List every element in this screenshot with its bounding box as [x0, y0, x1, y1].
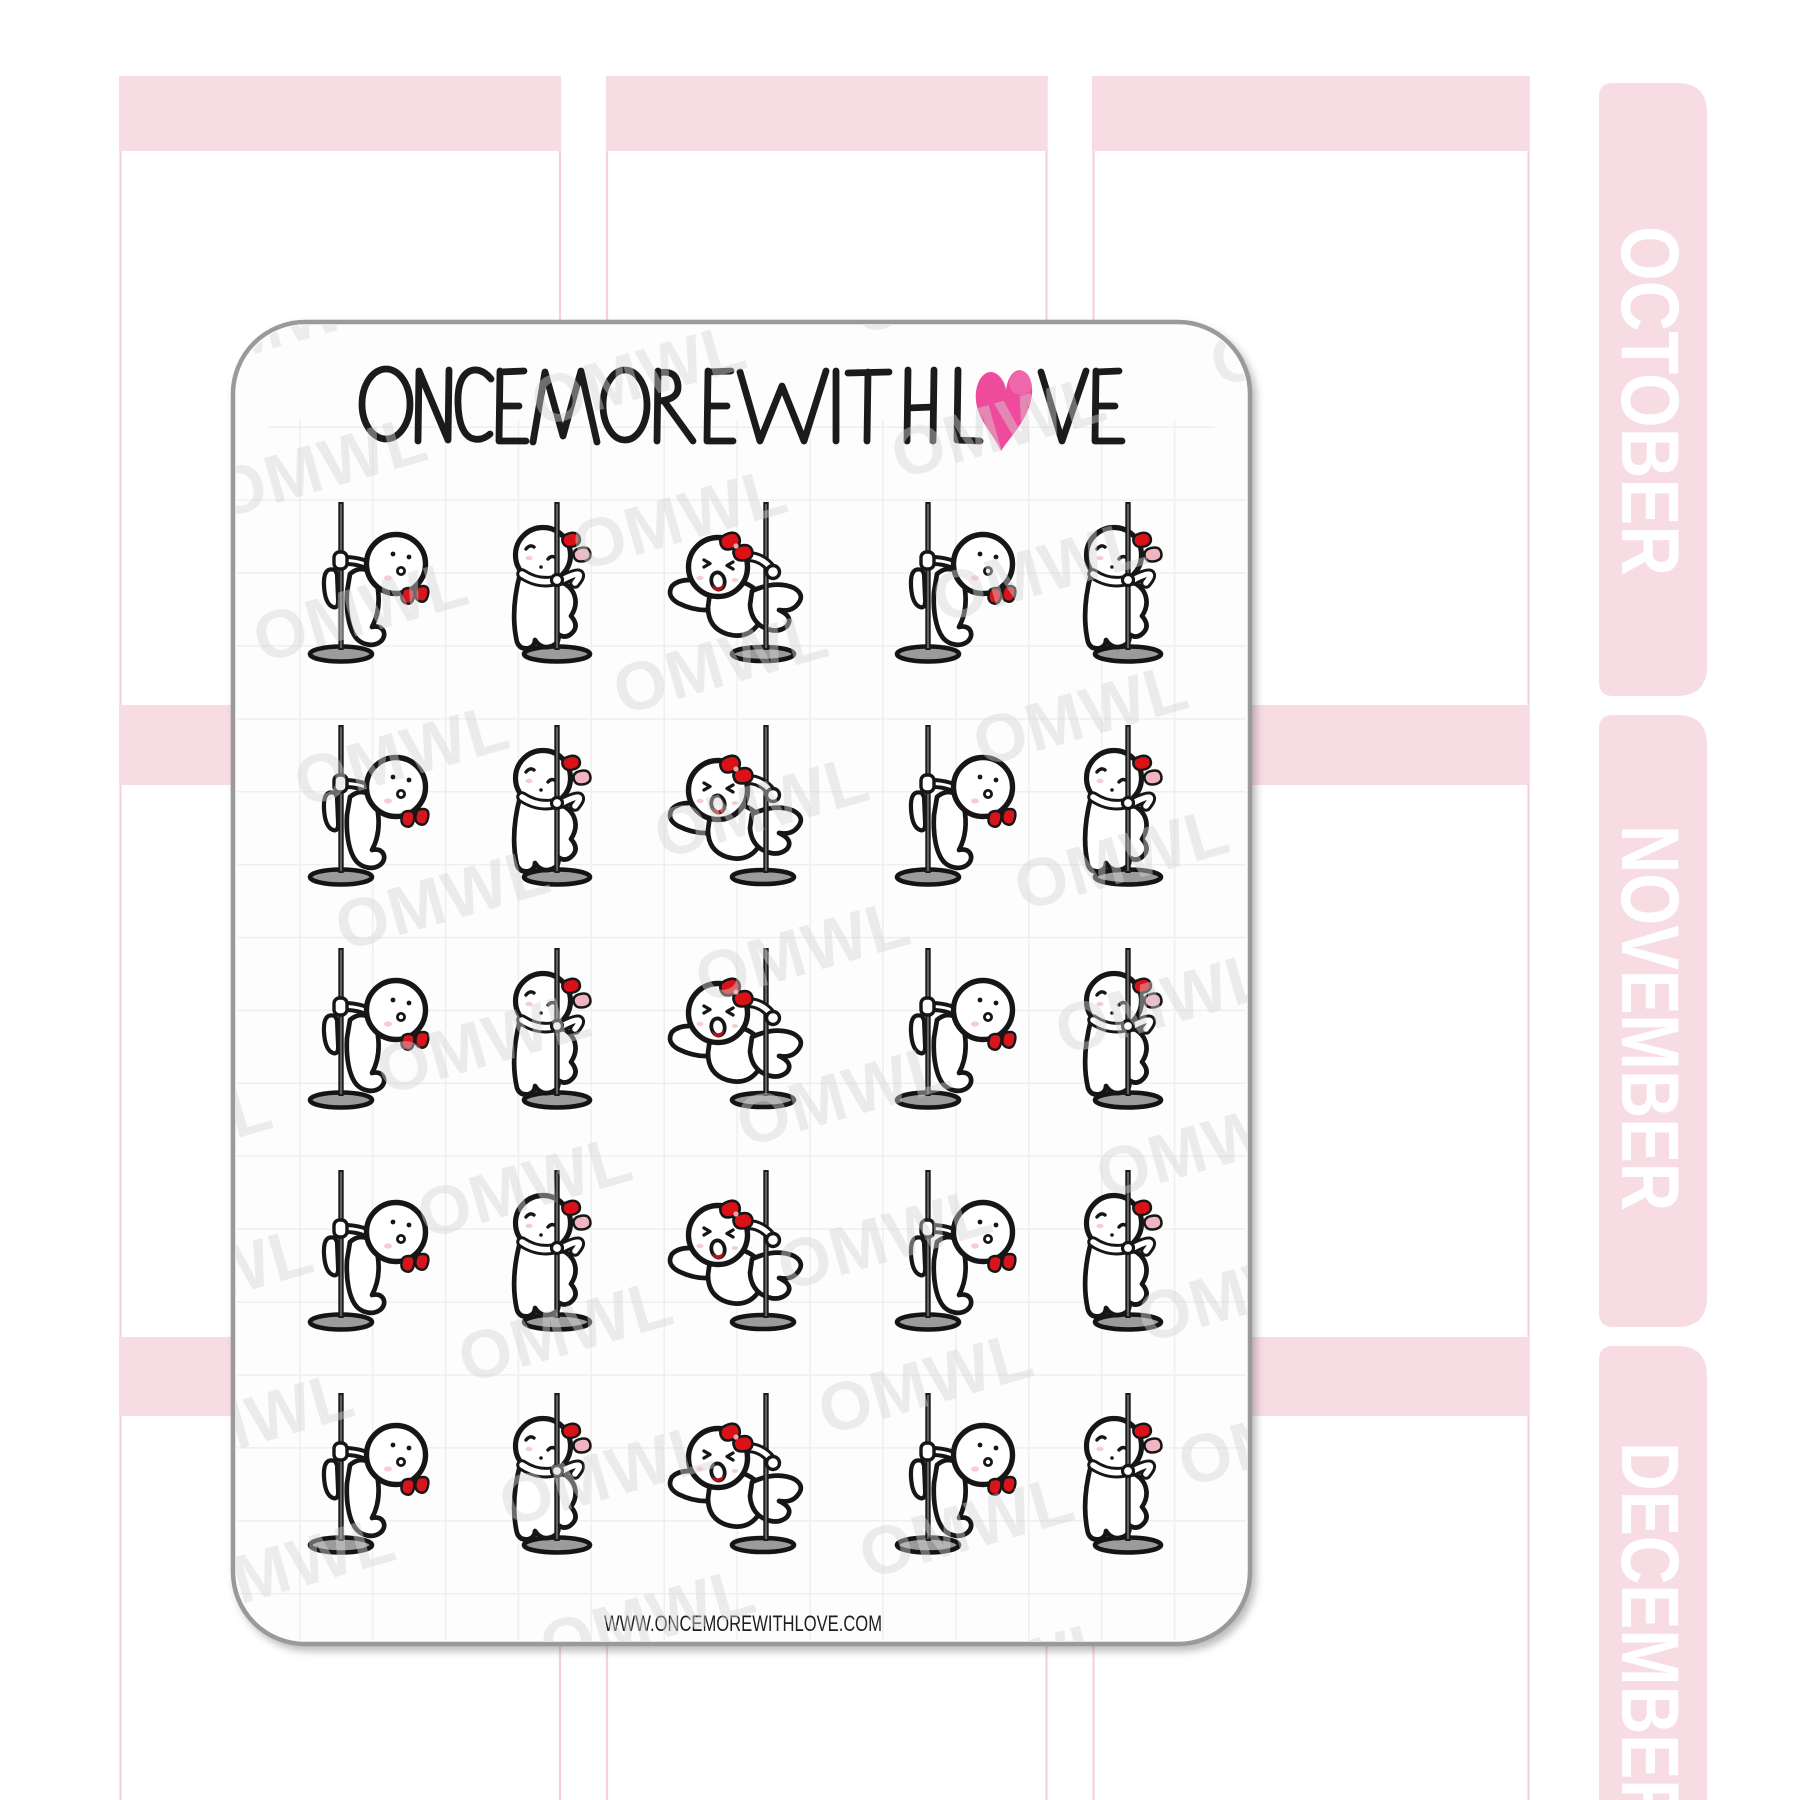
svg-text:NOVEMBER: NOVEMBER: [1604, 825, 1695, 1211]
svg-text:DECEMBER: DECEMBER: [1604, 1442, 1695, 1800]
svg-text:OCTOBER: OCTOBER: [1604, 226, 1695, 576]
